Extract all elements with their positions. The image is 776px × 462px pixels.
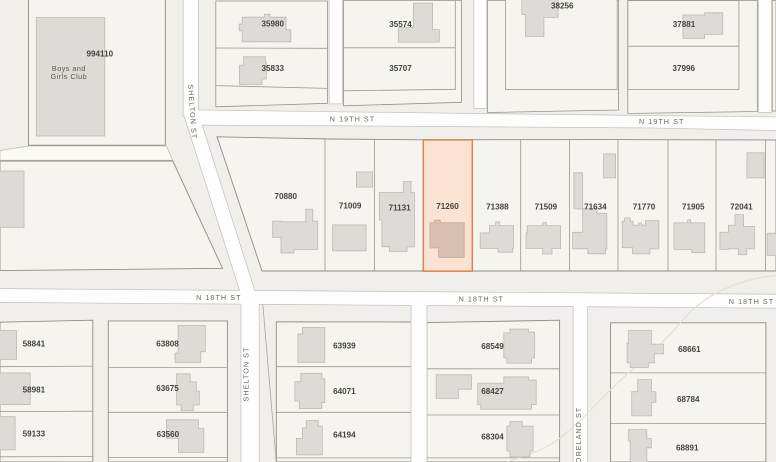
svg-text:N 18TH ST: N 18TH ST xyxy=(196,293,241,302)
svg-text:SHELTON ST: SHELTON ST xyxy=(242,347,251,402)
svg-text:64194: 64194 xyxy=(333,430,356,439)
svg-text:63808: 63808 xyxy=(156,340,179,349)
svg-text:68891: 68891 xyxy=(676,443,699,452)
svg-text:68784: 68784 xyxy=(677,395,700,404)
svg-text:71770: 71770 xyxy=(633,203,656,212)
svg-text:MORELAND ST: MORELAND ST xyxy=(574,407,583,462)
svg-text:71009: 71009 xyxy=(339,202,362,211)
svg-text:994110: 994110 xyxy=(87,50,114,59)
svg-text:63939: 63939 xyxy=(333,342,356,351)
svg-text:N 19TH ST: N 19TH ST xyxy=(639,117,684,126)
svg-text:68427: 68427 xyxy=(481,387,504,396)
svg-text:58841: 58841 xyxy=(23,339,46,348)
svg-text:68661: 68661 xyxy=(678,345,701,354)
svg-text:35833: 35833 xyxy=(262,64,285,73)
svg-text:37996: 37996 xyxy=(672,64,695,73)
svg-text:63675: 63675 xyxy=(156,384,179,393)
svg-text:71131: 71131 xyxy=(389,204,412,213)
svg-text:Girls Club: Girls Club xyxy=(51,72,88,81)
svg-text:71388: 71388 xyxy=(486,203,509,212)
svg-text:N 18TH ST: N 18TH ST xyxy=(459,295,504,304)
svg-text:71509: 71509 xyxy=(535,203,558,212)
svg-text:N 19TH ST: N 19TH ST xyxy=(330,115,375,124)
svg-text:35574: 35574 xyxy=(389,20,412,29)
svg-text:71905: 71905 xyxy=(682,203,705,212)
svg-text:38256: 38256 xyxy=(551,2,574,11)
svg-text:64071: 64071 xyxy=(333,387,356,396)
svg-text:71634: 71634 xyxy=(584,203,607,212)
svg-text:35707: 35707 xyxy=(389,64,412,73)
svg-text:N 18TH ST: N 18TH ST xyxy=(729,297,774,306)
svg-text:68304: 68304 xyxy=(481,432,504,441)
svg-text:72041: 72041 xyxy=(730,203,753,212)
svg-text:63560: 63560 xyxy=(157,430,180,439)
svg-text:68549: 68549 xyxy=(481,342,504,351)
svg-text:58981: 58981 xyxy=(23,386,46,395)
svg-text:35980: 35980 xyxy=(261,20,284,29)
svg-text:70880: 70880 xyxy=(274,192,297,201)
svg-text:59133: 59133 xyxy=(23,429,46,438)
svg-text:71260: 71260 xyxy=(436,202,459,211)
svg-text:37881: 37881 xyxy=(673,20,696,29)
